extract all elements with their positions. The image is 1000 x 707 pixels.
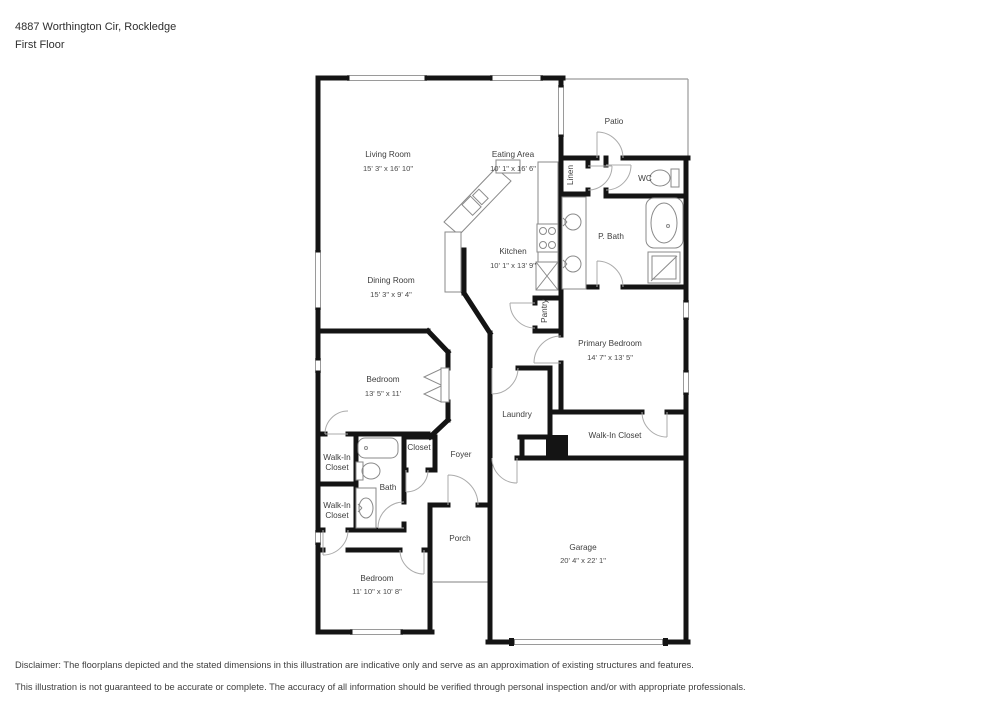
label-walk-in-closet-1a: Walk-In — [323, 453, 351, 462]
dims-dining-room: 15' 3" x 9' 4" — [370, 290, 412, 299]
label-garage: Garage — [569, 543, 597, 552]
label-porch: Porch — [449, 534, 471, 543]
label-bedroom-bottom: Bedroom — [360, 574, 393, 583]
shower — [648, 252, 680, 283]
address-title: 4887 Worthington Cir, Rockledge — [15, 21, 176, 33]
label-foyer: Foyer — [451, 450, 472, 459]
label-living-room: Living Room — [365, 150, 411, 159]
label-laundry: Laundry — [502, 410, 532, 419]
label-bath: Bath — [380, 483, 397, 492]
label-p-bath: P. Bath — [598, 232, 624, 241]
disclaimer-line-2: This illustration is not guaranteed to b… — [15, 682, 746, 692]
label-walk-in-closet-2a: Walk-In — [323, 501, 351, 510]
dims-living-room: 15' 3" x 16' 10" — [363, 164, 413, 173]
label-eating-area: Eating Area — [492, 150, 535, 159]
structural-column — [546, 435, 568, 458]
kitchen-island-counter — [444, 168, 511, 235]
label-walk-in-closet-primary: Walk-In Closet — [589, 431, 643, 440]
label-dining-room: Dining Room — [367, 276, 415, 285]
toilet-wc — [671, 169, 679, 187]
floorplan-svg: 4887 Worthington Cir, Rockledge First Fl… — [0, 0, 1000, 707]
label-bedroom-mid: Bedroom — [366, 375, 399, 384]
dims-primary-bedroom: 14' 7" x 13' 5" — [587, 353, 633, 362]
pbath-vanity — [562, 197, 586, 289]
label-walk-in-closet-2b: Closet — [325, 511, 349, 520]
dims-eating-area: 10' 1" x 16' 6" — [490, 164, 536, 173]
label-wc: WC — [638, 174, 652, 183]
dims-garage: 20' 4" x 22' 1" — [560, 556, 606, 565]
floor-title: First Floor — [15, 39, 65, 51]
label-primary-bedroom: Primary Bedroom — [578, 339, 642, 348]
dims-bedroom-bottom: 11' 10" x 10' 8" — [352, 587, 402, 596]
french-door — [424, 368, 449, 402]
label-patio: Patio — [605, 117, 624, 126]
label-pantry: Pantry — [540, 298, 549, 323]
dims-bedroom-mid: 13' 5" x 11' — [365, 389, 402, 398]
dims-kitchen: 10' 1" x 13' 9" — [490, 261, 536, 270]
disclaimer-line-1: Disclaimer: The floorplans depicted and … — [15, 660, 694, 670]
label-closet: Closet — [407, 443, 431, 452]
label-linen: Linen — [566, 165, 575, 185]
label-walk-in-closet-1b: Closet — [325, 463, 349, 472]
floorplan-page: 4887 Worthington Cir, Rockledge First Fl… — [0, 0, 1000, 707]
label-kitchen: Kitchen — [499, 247, 527, 256]
